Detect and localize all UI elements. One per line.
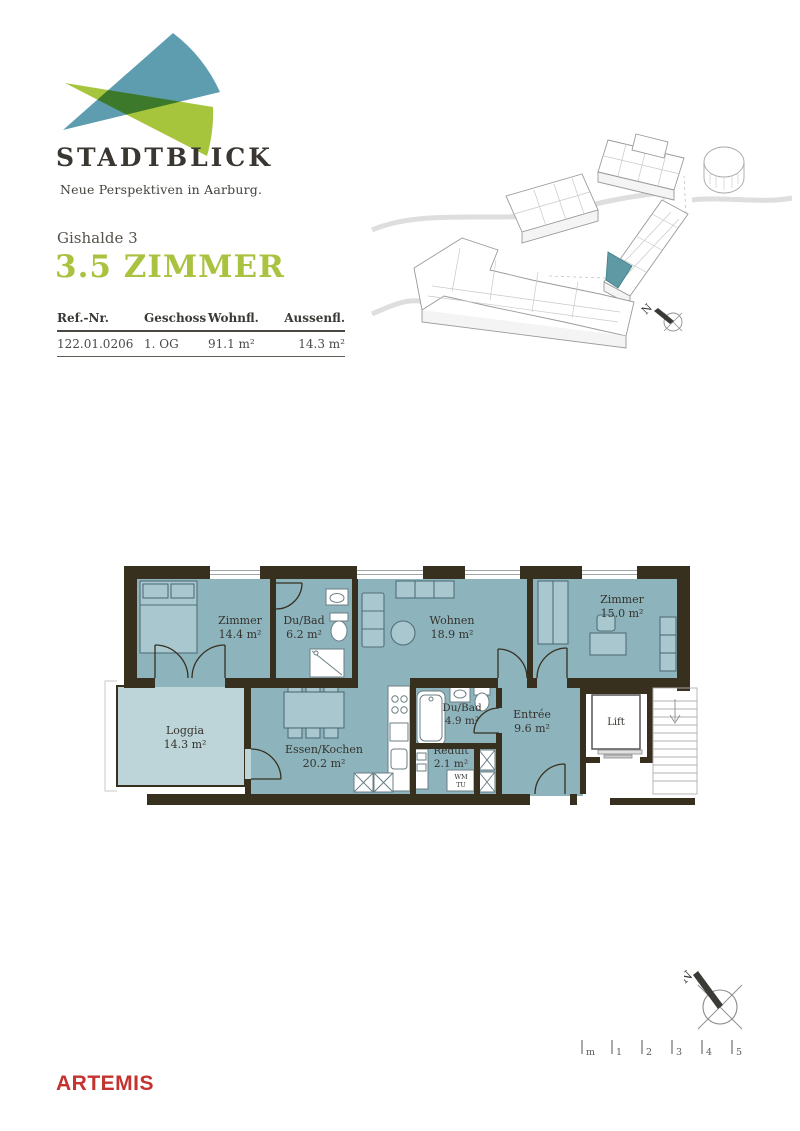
room-area-wohnen: 18.9 m² (431, 628, 474, 641)
sofa-icon (362, 593, 384, 647)
cell-aussenfl: 14.3 m² (277, 332, 345, 357)
table-header-row: Ref.-Nr. Geschoss Wohnfl. Aussenfl. (57, 311, 345, 332)
bathroom2-sink-icon (450, 687, 470, 702)
bed-icon (140, 581, 197, 653)
room-area-essen-kochen: 20.2 m² (303, 757, 346, 770)
doorway-floor-loggia-essen (245, 749, 251, 779)
dryer-label: TU (456, 781, 466, 789)
table-value-row: 122.01.0206 1. OG 91.1 m² 14.3 m² (57, 332, 345, 357)
shelf-icon (660, 617, 676, 671)
bathroom-sink-icon (326, 589, 348, 605)
col-header-ref: Ref.-Nr. (57, 311, 137, 332)
boiler-icon (415, 749, 428, 789)
doorway-floor-loggia (155, 678, 225, 687)
scale-label-2: 2 (646, 1047, 652, 1058)
room-label-dubad1: Du/Bad (283, 614, 324, 627)
room-area-entree: 9.6 m² (514, 722, 550, 735)
room-label-zimmer2: Zimmer (600, 593, 645, 606)
stairs-icon (653, 688, 697, 794)
room-label-essen-kochen: Essen/Kochen (285, 743, 363, 756)
window-icon (210, 566, 260, 579)
room-label-entree: Entrée (513, 708, 551, 721)
scale-label-5: 5 (736, 1047, 742, 1058)
room-label-loggia: Loggia (166, 724, 205, 737)
coffee-table-icon (391, 621, 415, 645)
col-header-aussenfl: Aussenfl. (277, 311, 345, 332)
scale-label-4: 4 (706, 1047, 712, 1058)
unit-data-table: Ref.-Nr. Geschoss Wohnfl. Aussenfl. 122.… (57, 311, 345, 357)
room-label-dubad2: Du/Bad (442, 702, 482, 714)
site-plan-illustration: N (368, 100, 796, 378)
sideboard-icon (396, 581, 454, 598)
room-area-zimmer1: 14.4 m² (219, 628, 262, 641)
site-building-north (598, 134, 684, 200)
room-area-reduit: 2.1 m² (434, 758, 468, 770)
site-building-middle (506, 174, 598, 243)
floor-plan: Zimmer 14.4 m² Du/Bad 6.2 m² Wohnen 18.9… (100, 553, 700, 811)
exterior-ground-line (105, 681, 117, 791)
col-header-geschoss: Geschoss (137, 311, 201, 332)
room-area-loggia: 14.3 m² (164, 738, 207, 751)
project-location: Gishalde 3 (57, 229, 138, 247)
artemis-logo: ARTEMIS (56, 1072, 154, 1096)
bathtub-icon (417, 691, 445, 745)
room-label-reduit: Reduit (433, 745, 469, 757)
site-building-round (704, 147, 744, 193)
cell-geschoss: 1. OG (137, 332, 201, 357)
cell-ref-nr: 122.01.0206 (57, 332, 137, 357)
site-compass-icon: N (639, 301, 682, 331)
site-compass-north-label: N (639, 301, 655, 317)
page: STADTBLICK Neue Perspektiven in Aarburg.… (0, 0, 800, 1131)
wardrobe-icon (538, 581, 568, 644)
room-area-dubad2: 4.9 m² (445, 715, 479, 727)
room-area-zimmer2: 15.0 m² (601, 607, 644, 620)
scale-label-3: 3 (676, 1047, 682, 1058)
closet-essen-icon (354, 773, 393, 792)
cell-wohnfl: 91.1 m² (201, 332, 277, 357)
site-building-south (414, 238, 634, 348)
site-building-highlight (604, 200, 688, 305)
washer-label: WM (454, 773, 468, 781)
scale-label-1: 1 (616, 1047, 622, 1058)
window-icon (582, 566, 637, 579)
brand-name: STADTBLICK (56, 143, 273, 172)
window-icon (357, 566, 423, 579)
page-title: 3.5 ZIMMER (55, 249, 285, 285)
scale-label-m: m (586, 1047, 595, 1058)
dining-table-icon (284, 682, 344, 738)
room-label-wohnen: Wohnen (430, 614, 475, 627)
toilet-icon (330, 613, 348, 641)
shower-icon (310, 649, 344, 677)
compass-north-label: N (684, 968, 696, 987)
window-icon (465, 566, 520, 579)
col-header-wohnfl: Wohnfl. (201, 311, 277, 332)
room-area-dubad1: 6.2 m² (286, 628, 322, 641)
room-label-zimmer1: Zimmer (218, 614, 263, 627)
brand-tagline: Neue Perspektiven in Aarburg. (60, 182, 262, 197)
room-label-lift: Lift (607, 717, 625, 728)
scale-bar: m 1 2 3 4 5 (578, 1038, 748, 1068)
compass-rose-icon: N (684, 962, 754, 1048)
stadtblick-logo-icon (57, 28, 227, 160)
